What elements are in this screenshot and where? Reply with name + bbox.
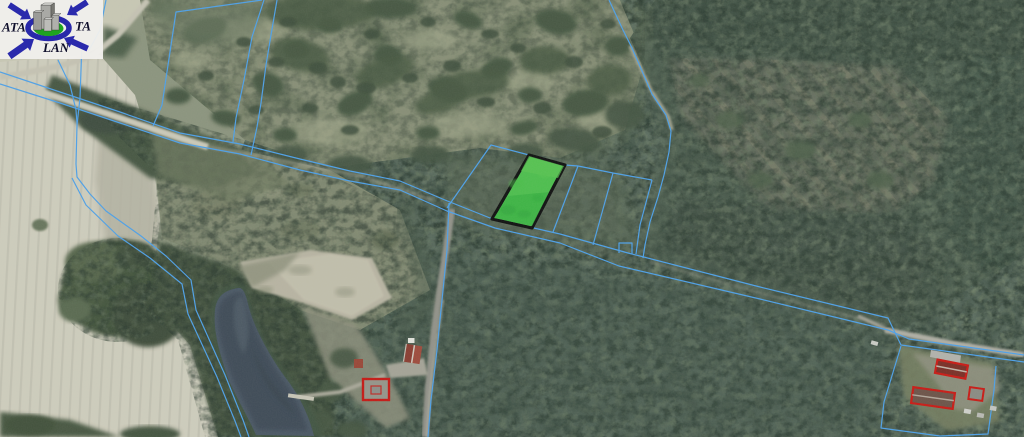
svg-text:ATA: ATA [1, 20, 26, 35]
svg-text:LAN: LAN [42, 40, 70, 55]
svg-text:TA: TA [75, 19, 91, 34]
